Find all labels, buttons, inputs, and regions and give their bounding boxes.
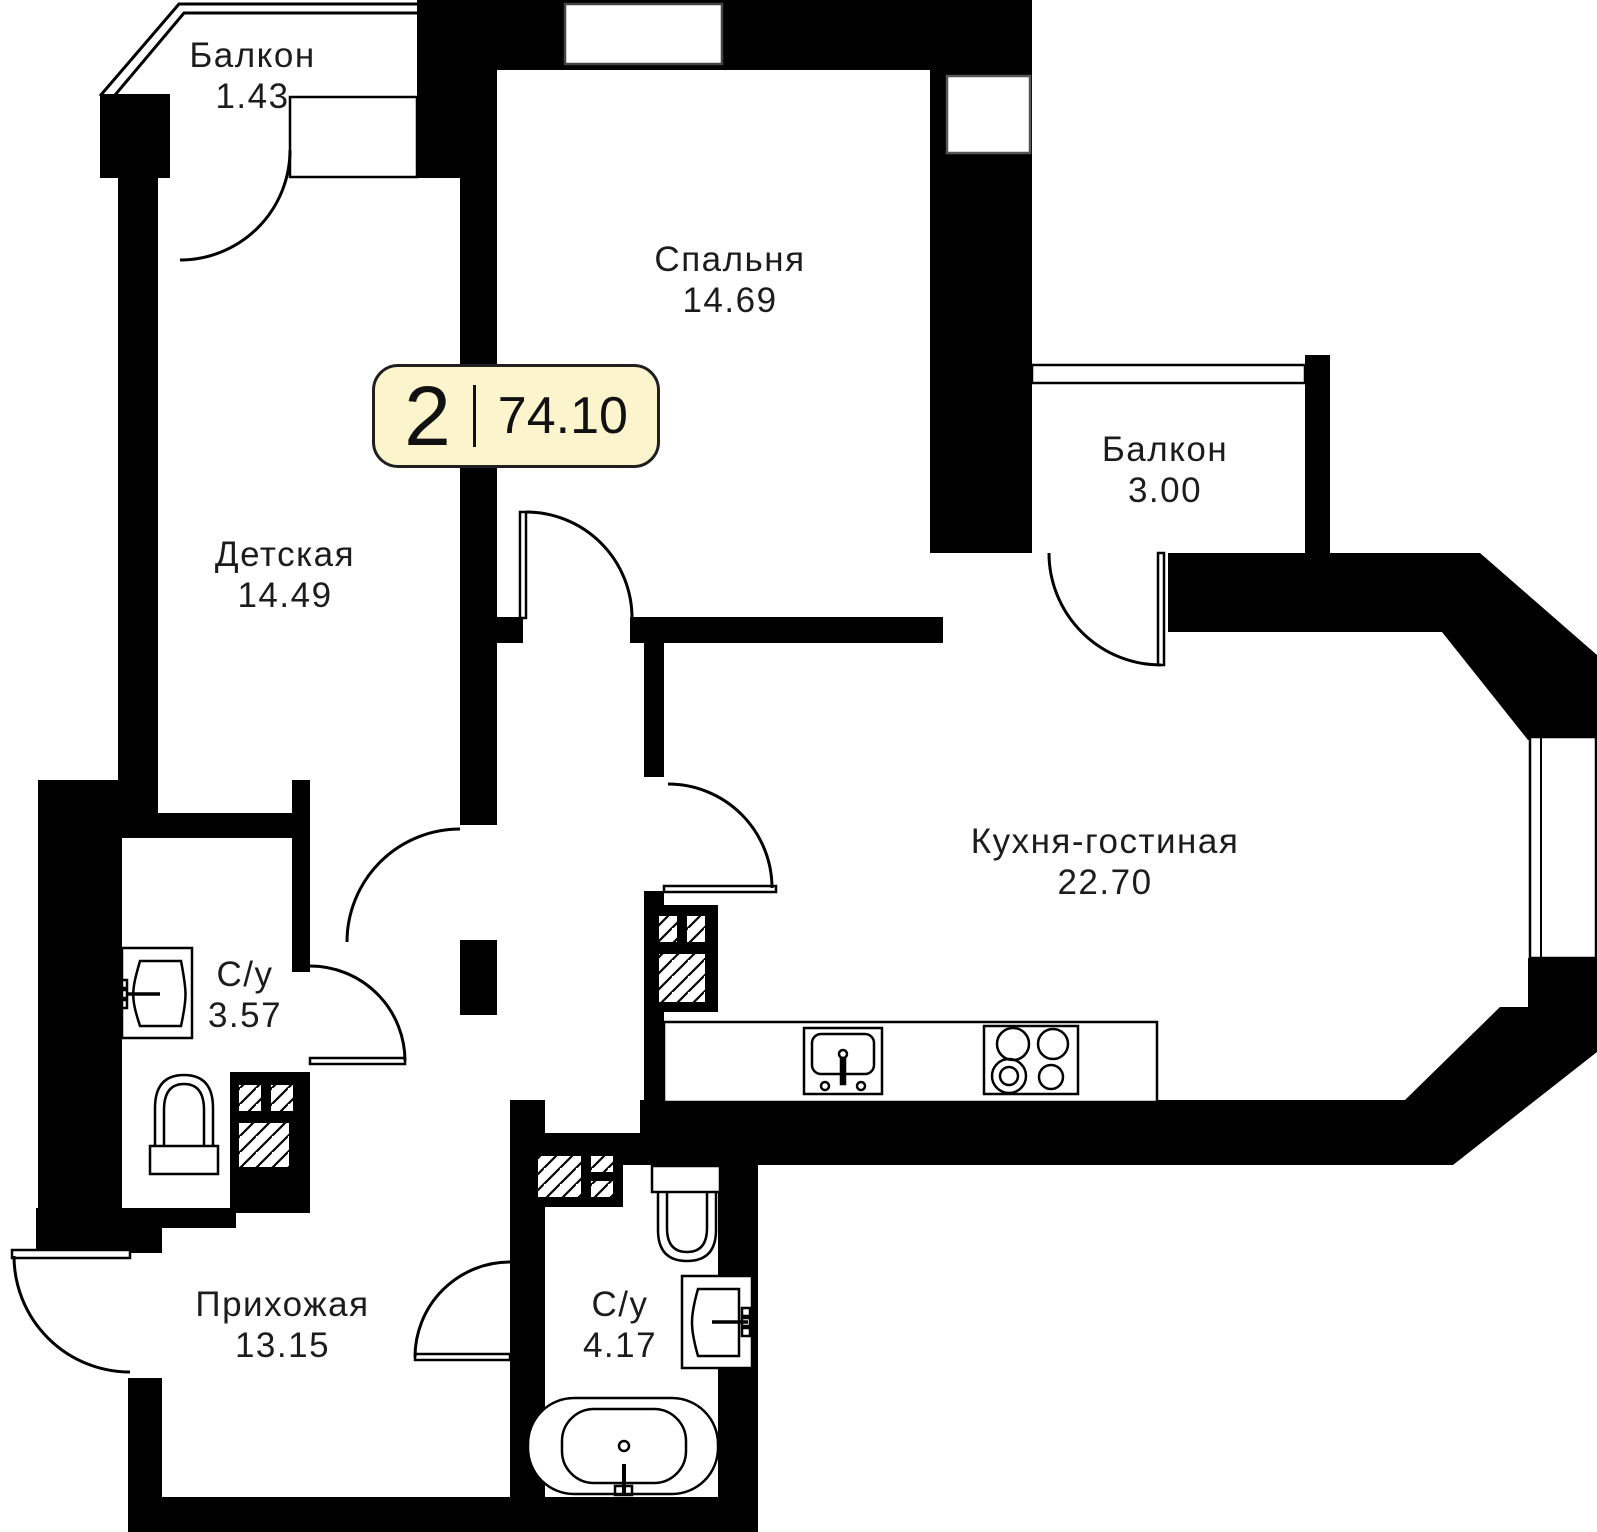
room-name: С/у: [540, 1285, 700, 1326]
room-area: 14.49: [165, 576, 405, 617]
door-arc-icon: [668, 784, 772, 888]
room-area: 22.70: [930, 863, 1280, 904]
room-area: 13.15: [160, 1326, 405, 1367]
room-name: Спальня: [600, 240, 860, 281]
room-label-bathroom-big: С/у 4.17: [540, 1285, 700, 1366]
room-area: 14.69: [600, 281, 860, 322]
room-label-kids-room: Детская 14.49: [165, 535, 405, 616]
door-arc-icon: [1049, 553, 1161, 665]
room-name: Детская: [165, 535, 405, 576]
apartment-info-badge: 2 74.10: [372, 364, 660, 468]
room-name: С/у: [165, 955, 325, 996]
door-arc-icon: [180, 150, 290, 260]
door-arc-icon: [347, 829, 460, 942]
door-leaf: [1158, 553, 1164, 665]
badge-divider: [473, 385, 476, 447]
rooms-count: 2: [404, 374, 451, 458]
door-arc-icon: [415, 1262, 510, 1357]
room-label-bedroom: Спальня 14.69: [600, 240, 860, 321]
bathtub-icon: [528, 1398, 718, 1495]
floor-plan: Балкон 1.43 Спальня 14.69 Балкон 3.00 Де…: [0, 0, 1597, 1532]
kitchen-sink-icon: [804, 1028, 882, 1094]
toilet-icon: [150, 1075, 218, 1174]
toilet-icon: [652, 1166, 720, 1261]
room-label-hallway: Прихожая 13.15: [160, 1285, 405, 1366]
door-leaf: [664, 886, 776, 892]
door-leaf: [415, 1354, 510, 1360]
room-label-balcony-top: Балкон 1.43: [140, 36, 365, 117]
room-name: Балкон: [1040, 430, 1290, 471]
room-label-kitchen-living: Кухня-гостиная 22.70: [930, 822, 1280, 903]
room-area: 4.17: [540, 1326, 700, 1367]
window-icon: [1530, 737, 1596, 958]
door-arc-icon: [526, 512, 632, 618]
room-area: 1.43: [140, 77, 365, 118]
room-label-bathroom-small: С/у 3.57: [165, 955, 325, 1036]
window-icon: [565, 4, 722, 64]
stove-icon: [984, 1026, 1078, 1094]
room-area: 3.57: [165, 996, 325, 1037]
wall-niche: [947, 76, 1030, 153]
room-name: Прихожая: [160, 1285, 405, 1326]
room-name: Кухня-гостиная: [930, 822, 1280, 863]
total-area: 74.10: [498, 390, 628, 442]
room-label-balcony-right: Балкон 3.00: [1040, 430, 1290, 511]
kitchen-counter: [664, 1022, 1157, 1102]
room-name: Балкон: [140, 36, 365, 77]
door-leaf: [310, 1058, 405, 1064]
door-leaf: [520, 512, 526, 618]
door-leaf: [12, 1250, 130, 1258]
door-arc-icon: [14, 1256, 130, 1372]
room-area: 3.00: [1040, 471, 1290, 512]
